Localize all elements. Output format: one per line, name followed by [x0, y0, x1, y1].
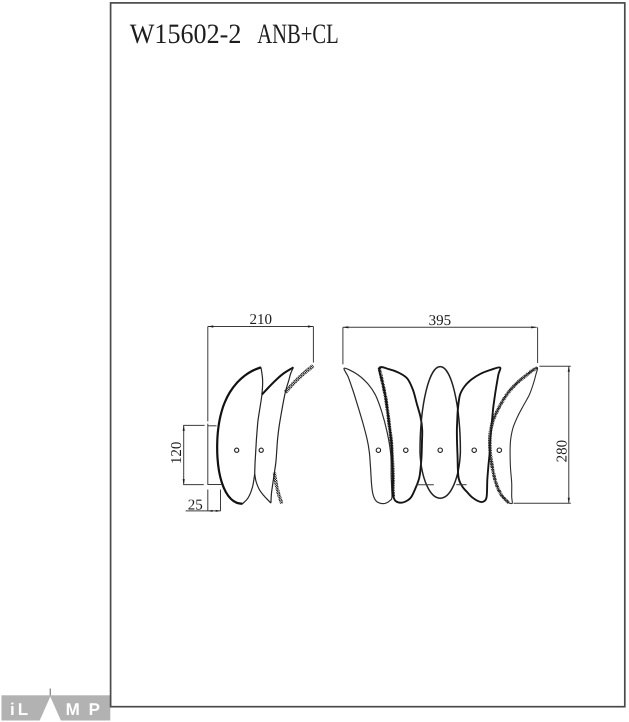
svg-text:W15602-2: W15602-2 — [130, 19, 242, 50]
svg-text:210: 210 — [250, 312, 273, 328]
svg-text:280: 280 — [555, 440, 571, 463]
svg-text:i: i — [10, 700, 15, 719]
svg-text:M: M — [66, 700, 80, 719]
svg-text:ANB+CL: ANB+CL — [257, 19, 339, 50]
svg-text:120: 120 — [169, 442, 185, 465]
svg-text:L: L — [18, 700, 28, 719]
svg-text:25: 25 — [188, 498, 203, 514]
svg-text:P: P — [89, 700, 100, 719]
svg-text:395: 395 — [429, 313, 452, 329]
